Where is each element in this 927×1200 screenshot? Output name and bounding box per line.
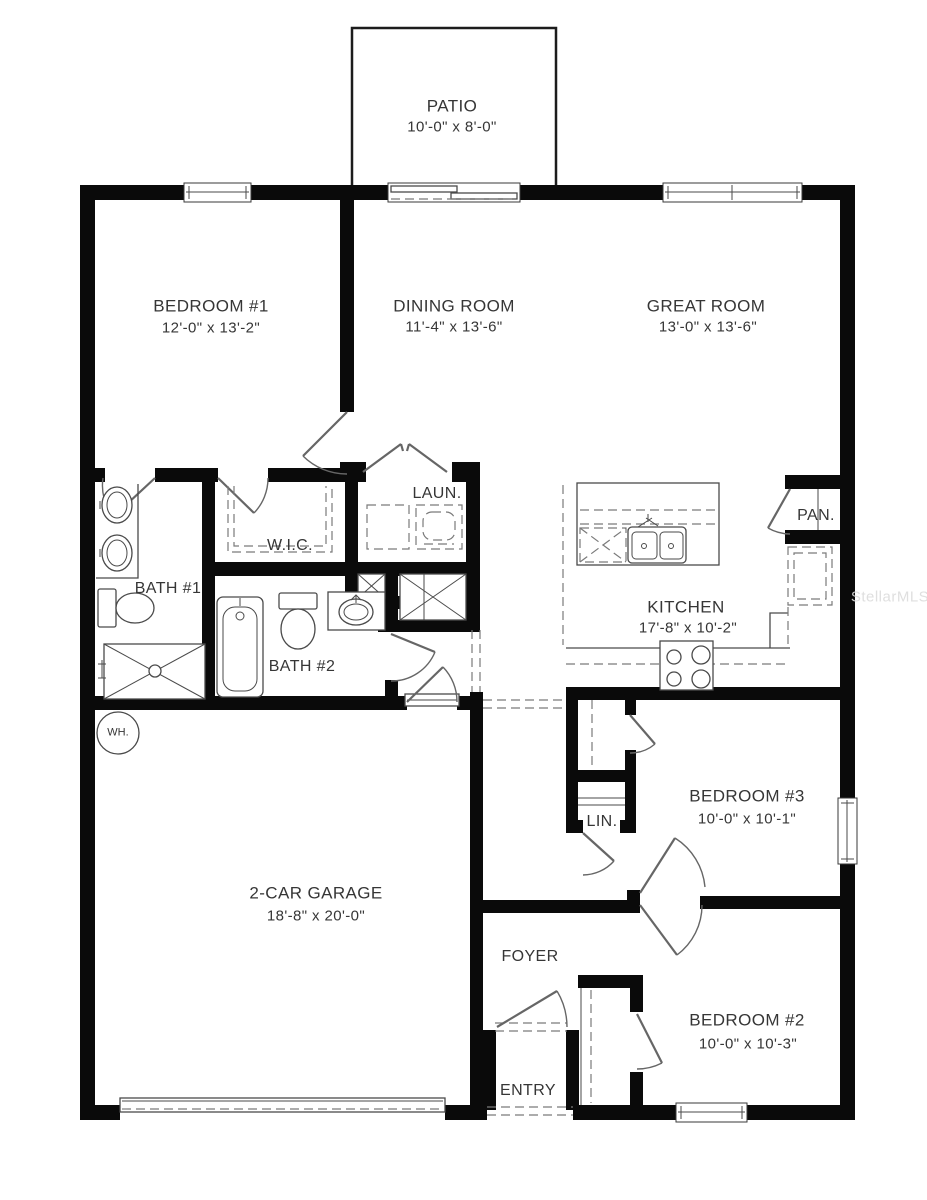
front-door: [495, 991, 567, 1031]
opening-dashes: [472, 485, 566, 708]
wic-door: [218, 478, 268, 513]
washer: [367, 505, 409, 549]
room-label-bedroom1: BEDROOM #1: [153, 298, 268, 315]
room-label-bath2: BATH #2: [269, 659, 336, 675]
bedroom2-closet: [581, 988, 591, 1105]
floor-plan: PATIO 10'-0" x 8'-0" BEDROOM #1 12'-0" x…: [0, 0, 927, 1200]
bath1-shower: [98, 644, 205, 699]
room-label-linen: LIN.: [587, 814, 618, 830]
room-dims-great: 13'-0" x 13'-6": [659, 320, 757, 335]
room-label-bedroom2: BEDROOM #2: [689, 1012, 804, 1029]
window-bedroom3: [838, 798, 857, 864]
window-great-room: [663, 183, 802, 202]
room-label-wic: W.I.C.: [267, 538, 313, 554]
room-dims-kitchen: 17'-8" x 10'-2": [639, 621, 737, 636]
garage-door: [120, 1098, 445, 1112]
watermark: StellarMLS: [851, 589, 927, 606]
room-dims-bedroom1: 12'-0" x 13'-2": [162, 321, 260, 336]
room-dims-bedroom2: 10'-0" x 10'-3": [699, 1037, 797, 1052]
refrigerator: [788, 547, 832, 605]
room-label-entry: ENTRY: [500, 1083, 556, 1099]
room-label-great: GREAT ROOM: [647, 298, 766, 315]
interior-walls: [95, 200, 855, 1120]
garage-entry-door: [405, 667, 459, 706]
window-bedroom1: [184, 183, 251, 202]
bath1-vanity: [96, 484, 138, 578]
room-label-pantry: PAN.: [797, 508, 835, 524]
room-dims-dining: 11'-4" x 13'-6": [405, 320, 502, 335]
bedroom3-closet-door: [630, 715, 655, 753]
sliding-door-patio: [388, 183, 520, 202]
room-dims-patio: 10'-0" x 8'-0": [407, 120, 497, 135]
pantry-door: [768, 489, 790, 534]
bedroom2-closet-door: [637, 1014, 662, 1069]
bath2-door: [391, 634, 435, 681]
room-label-garage: 2-CAR GARAGE: [249, 885, 382, 902]
room-dims-garage: 18'-8" x 20'-0": [267, 909, 365, 924]
room-label-bedroom3: BEDROOM #3: [689, 788, 804, 805]
room-label-laundry: LAUN.: [412, 486, 461, 502]
room-dims-bedroom3: 10'-0" x 10'-1": [698, 812, 796, 827]
window-bedroom2: [676, 1103, 747, 1122]
laundry-bifold-doors: [363, 444, 447, 472]
bath2-vanity: [328, 592, 385, 630]
room-label-patio: PATIO: [427, 98, 478, 115]
linen-shelves: [578, 798, 625, 805]
room-label-bath1: BATH #1: [135, 581, 202, 597]
bedroom3-door: [640, 838, 705, 893]
linen-door: [583, 833, 614, 875]
bedroom2-door: [640, 905, 702, 955]
room-label-kitchen: KITCHEN: [647, 599, 724, 616]
bath2-toilet: [279, 593, 317, 649]
room-label-dining: DINING ROOM: [393, 298, 515, 315]
dryer: [416, 505, 462, 549]
bath2-tub: [217, 597, 263, 697]
entry-porch-edge: [487, 1107, 573, 1115]
room-label-foyer: FOYER: [501, 949, 558, 965]
range: [660, 641, 713, 690]
dishwasher: [580, 528, 626, 562]
mechanical-closet: [400, 574, 466, 620]
water-heater-label: WH.: [107, 728, 128, 739]
